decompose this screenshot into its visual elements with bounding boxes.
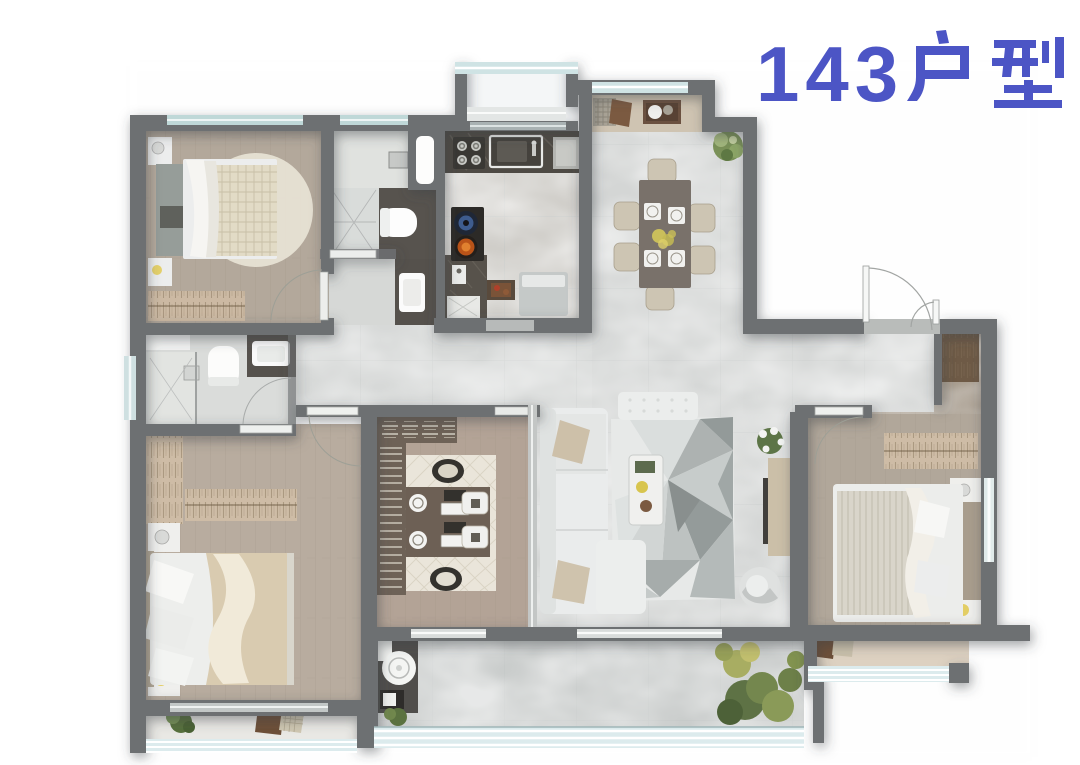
svg-text:143: 143 [756,30,904,118]
